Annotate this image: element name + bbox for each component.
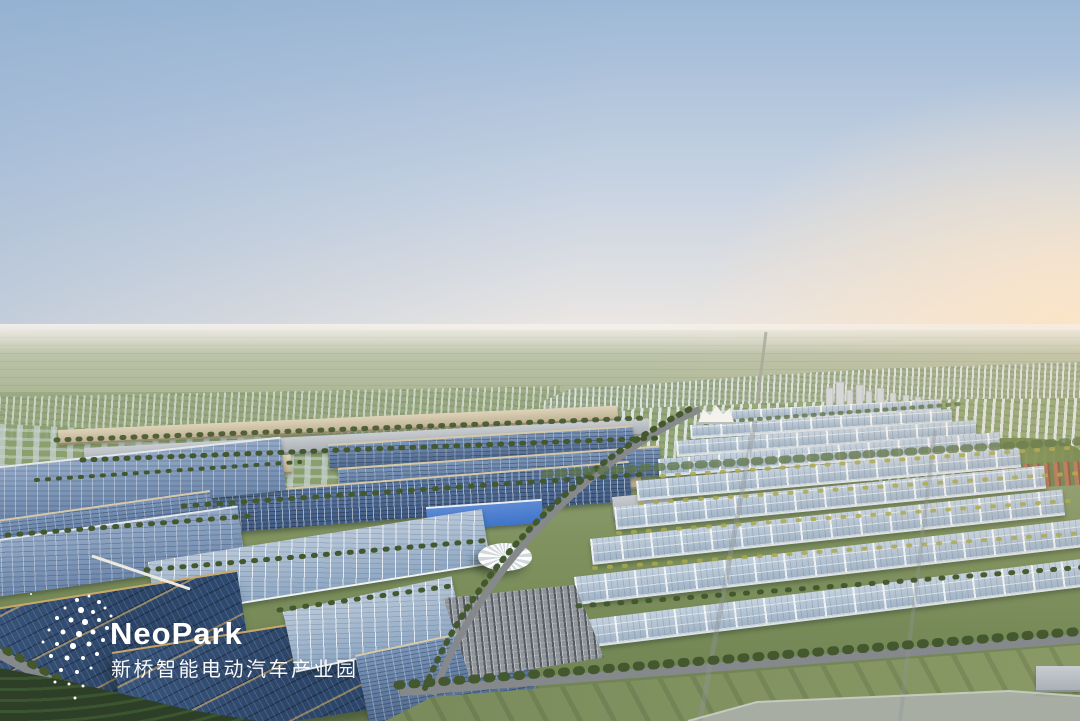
aerial-render-neopark: NeoPark 新桥智能电动汽车产业园: [0, 0, 1080, 721]
boulevard-tree-line: [425, 406, 696, 688]
tree-line: [705, 404, 960, 423]
footbridge: [92, 556, 190, 589]
tree-line: [56, 418, 645, 440]
cross-street: [900, 430, 935, 721]
main-avenue-road: [400, 638, 1080, 692]
roads-and-trees: [0, 0, 1080, 721]
tree-line: [279, 585, 458, 610]
tree-line: [36, 462, 300, 480]
tree-line: [82, 438, 660, 460]
distant-highway: [757, 332, 766, 403]
avenue-tree-line: [398, 631, 1080, 685]
yellow-tree-line: [618, 500, 1080, 533]
brand-subtitle: 新桥智能电动汽车产业园: [111, 653, 359, 682]
tree-line: [146, 540, 492, 570]
pond-edge: [688, 691, 1080, 721]
park-boulevard-road: [433, 409, 700, 695]
yellow-tree-line: [594, 533, 1080, 568]
yellow-tree-line: [640, 473, 1080, 503]
tree-line: [0, 516, 250, 536]
logo-mark-dots-icon: [30, 593, 32, 595]
tent-landmark: [698, 405, 734, 423]
brand-name: NeoPark: [110, 616, 243, 652]
tree-line: [578, 567, 1080, 606]
